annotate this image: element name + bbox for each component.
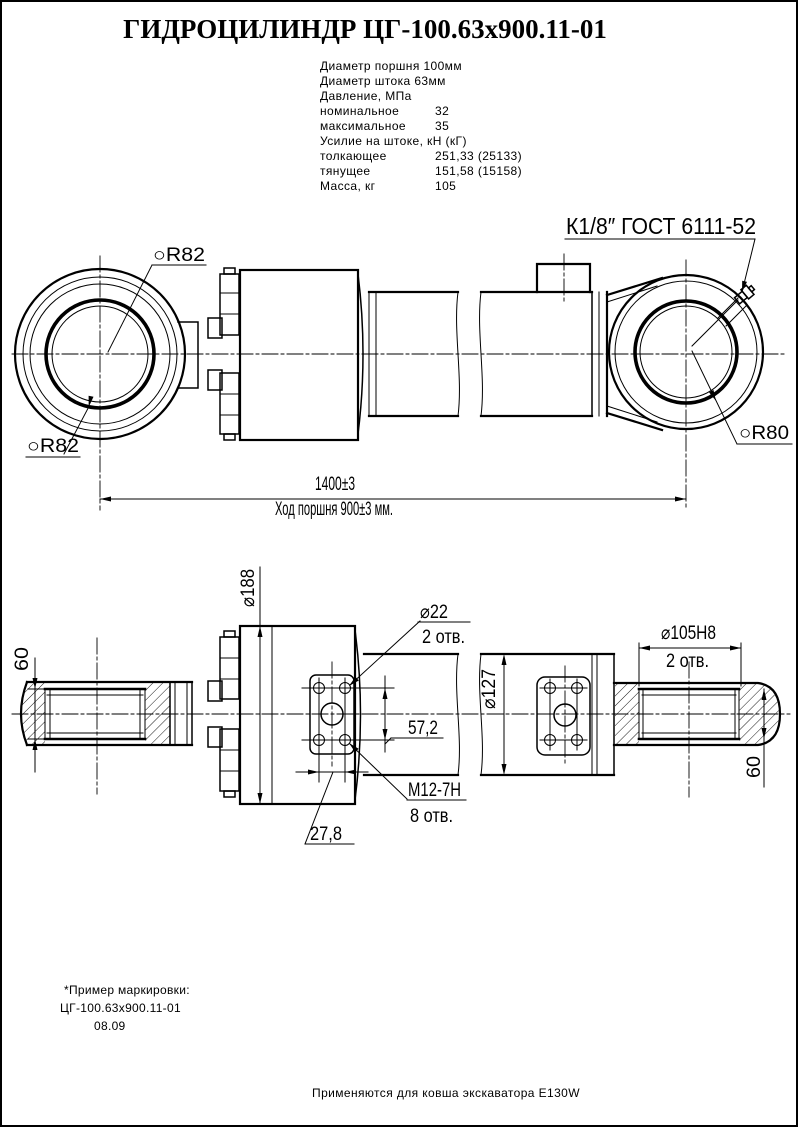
thread-label: М12-7Н xyxy=(408,780,461,801)
marking-line1: *Пример маркировки: xyxy=(64,981,190,999)
radius-label-r82-bottom: ○R82 xyxy=(27,436,79,457)
hole-diameter-label: ⌀22 xyxy=(420,602,448,623)
rod-eye-section-left xyxy=(21,682,192,745)
application-note: Применяются для ковша экскаватора Е130W xyxy=(246,1086,646,1100)
drawing-sheet: ГИДРОЦИЛИНДР ЦГ-100.63х900.11-01 Диаметр… xyxy=(0,0,798,1127)
leader-lines-side xyxy=(26,239,792,457)
horizontal-spacing-dim-text: 27,8 xyxy=(310,824,342,845)
port-thread-label: К1/8″ ГОСТ 6111-52 xyxy=(566,213,756,239)
overall-length-dim-text: 1400±3 xyxy=(315,474,355,495)
eye-bore-qty-label: 2 отв. xyxy=(666,651,709,672)
marking-line3: 08.09 xyxy=(94,1017,190,1035)
flange-plate-barrel xyxy=(537,677,590,755)
flange-plate-body xyxy=(302,675,394,782)
eye-width-dim-left-text: 60 xyxy=(12,647,33,671)
technical-drawing-svg: ○R82 ○R82 ○R80 К1/8″ ГОСТ 6111-52 1400±3… xyxy=(2,2,798,1127)
piston-stroke-dim-text: Ход поршня 900±3 мм. xyxy=(275,499,393,520)
overall-length-dimension xyxy=(100,497,686,502)
eye-width-dim-right-text: 60 xyxy=(744,756,765,778)
cylinder-body-side xyxy=(240,264,662,440)
eye-bore-dim-text: ⌀105Н8 xyxy=(661,623,716,644)
hole-qty-label: 2 отв. xyxy=(422,627,465,648)
thread-qty-label: 8 отв. xyxy=(410,806,453,827)
barrel-diameter-dimension xyxy=(502,654,507,775)
marking-example-note: *Пример маркировки: ЦГ-100.63х900.11-01 … xyxy=(60,981,190,1035)
barrel-diameter-dim-text: ⌀127 xyxy=(479,669,500,709)
marking-line2: ЦГ-100.63х900.11-01 xyxy=(60,999,190,1017)
body-diameter-dim-text: ⌀188 xyxy=(238,569,259,607)
port-boss xyxy=(537,264,590,292)
side-view-drawing: ○R82 ○R82 ○R80 К1/8″ ГОСТ 6111-52 1400±3… xyxy=(12,213,792,520)
vertical-spacing-dim-text: 57,2 xyxy=(408,718,438,739)
bottom-view-drawing: ⌀188 ⌀22 2 отв. 57,2 М12-7Н 8 отв. 27,8 … xyxy=(12,567,790,845)
radius-label-r82-top: ○R82 xyxy=(153,245,205,266)
radius-label-r80: ○R80 xyxy=(739,423,789,444)
